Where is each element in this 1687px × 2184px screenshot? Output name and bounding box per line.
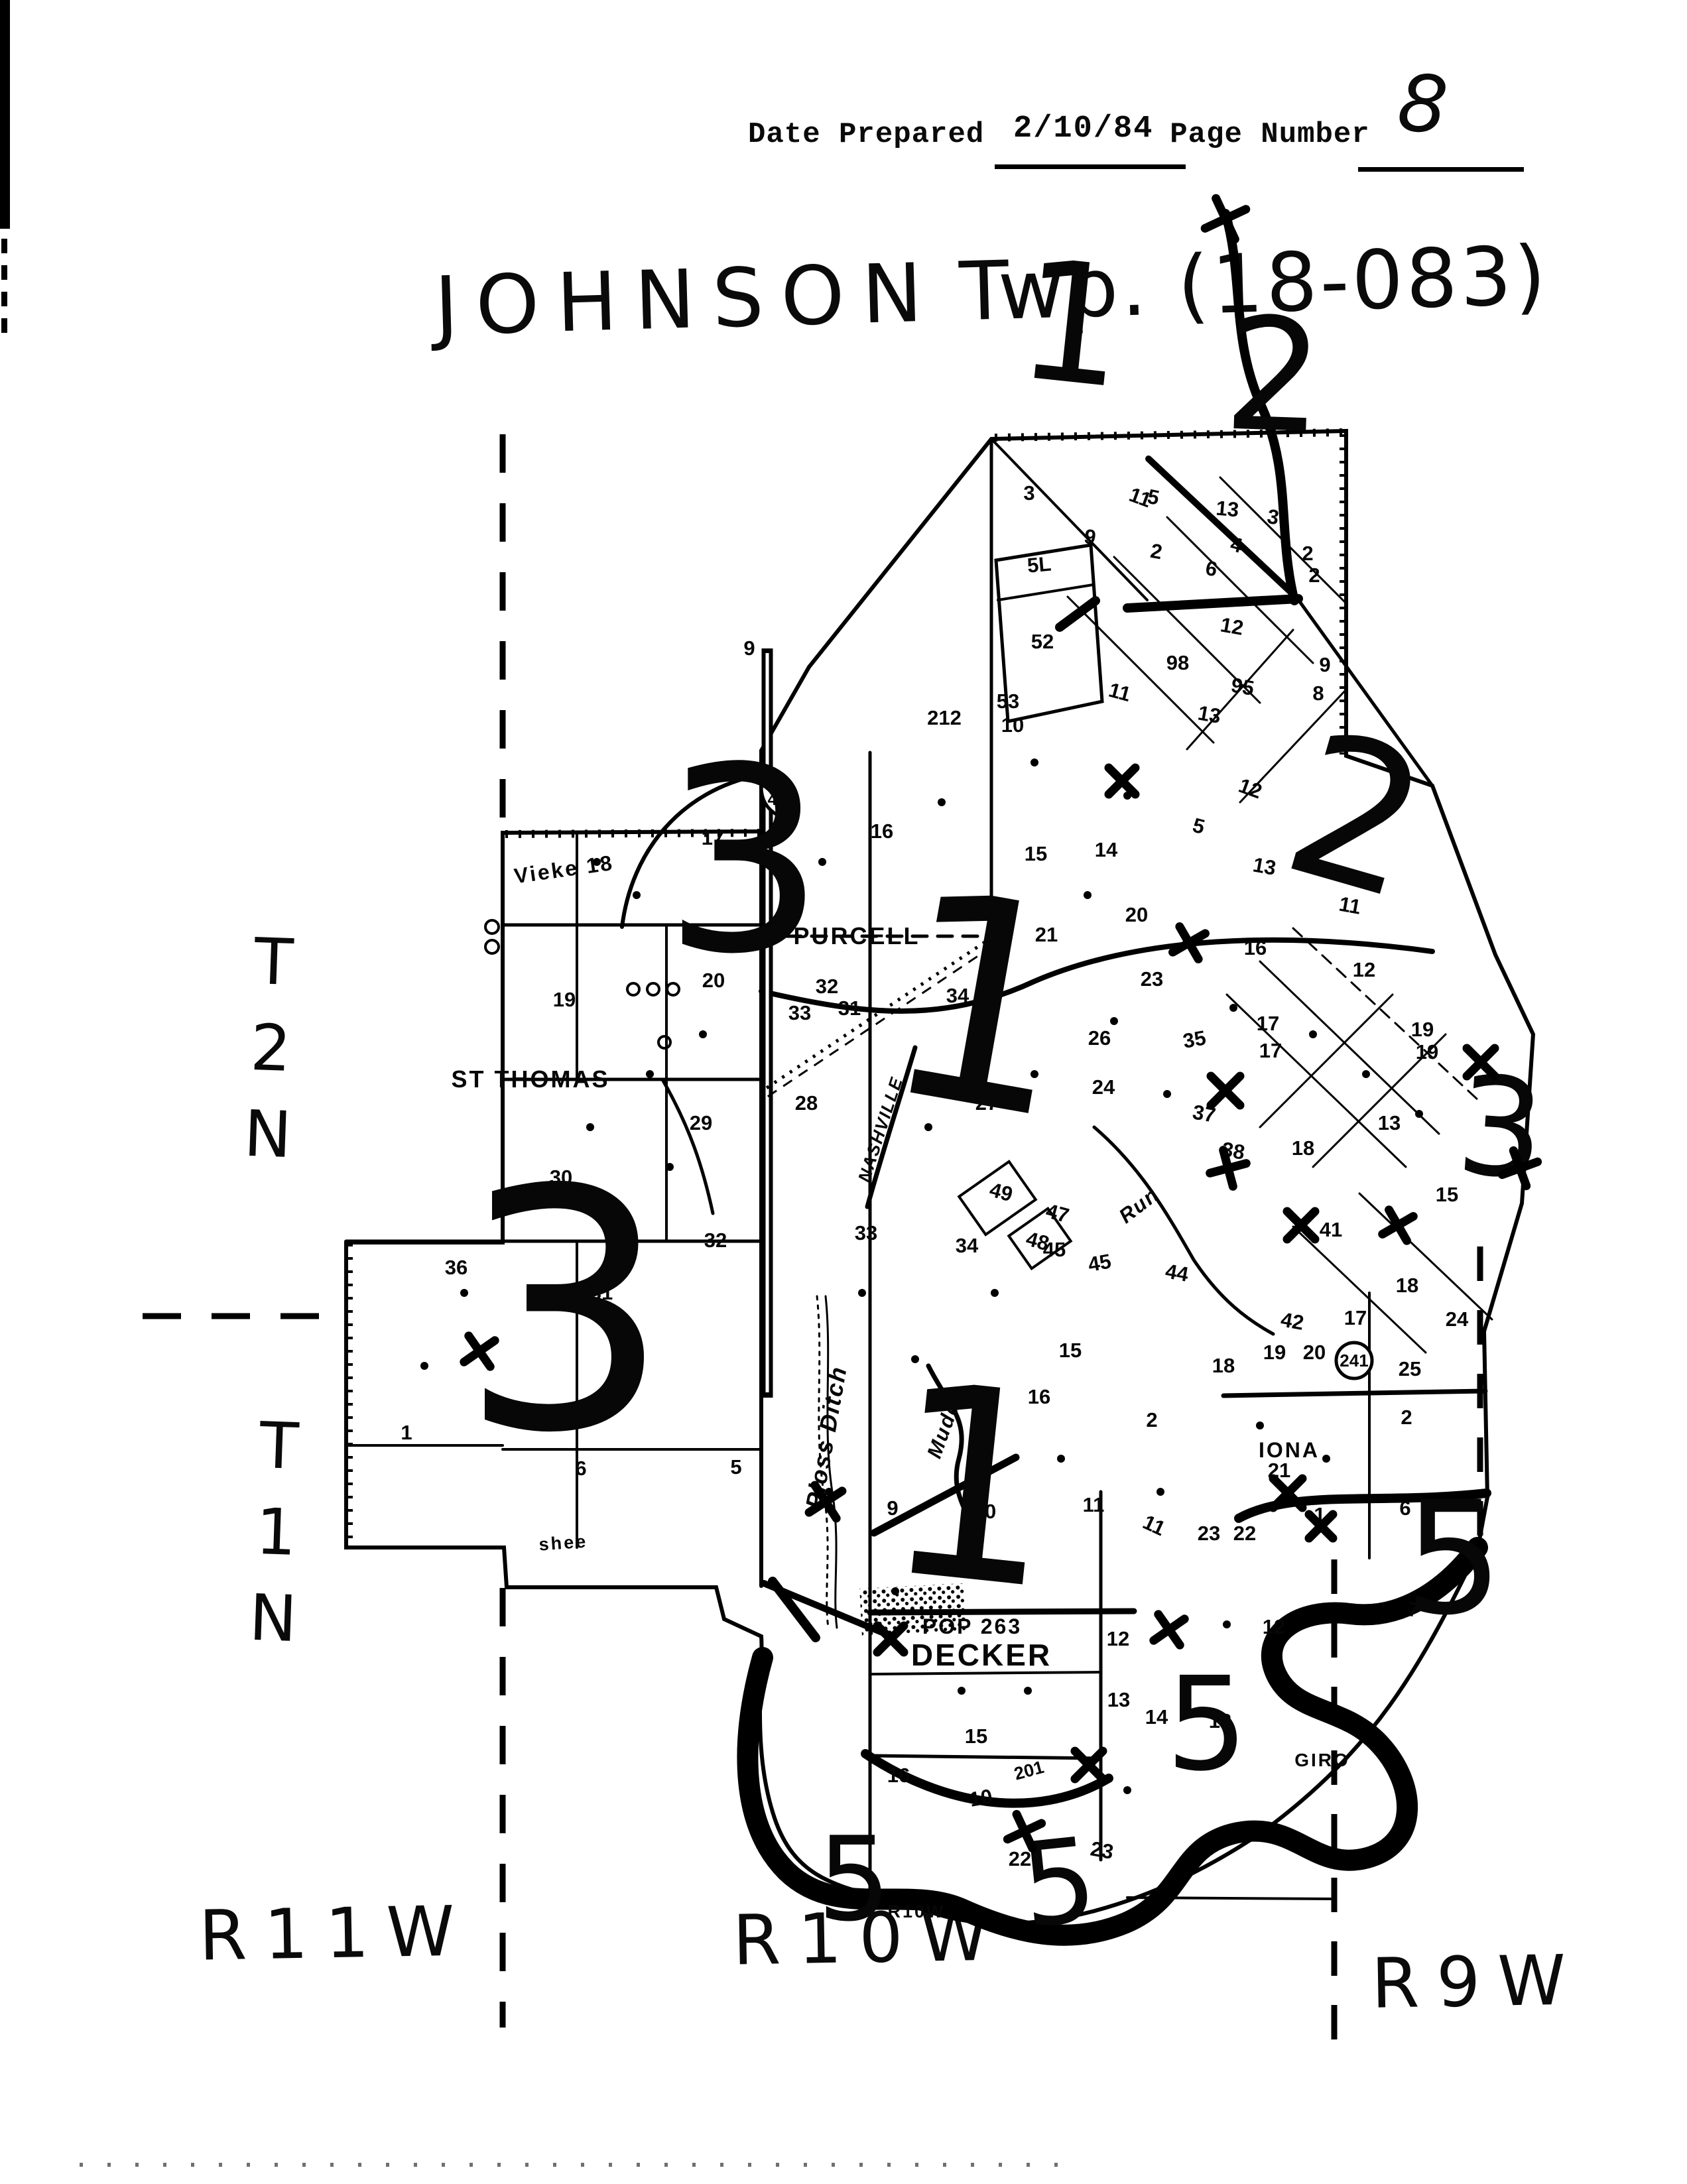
parcel-number-label: 15 bbox=[965, 1725, 987, 1748]
parcel-number-label: 6 bbox=[1204, 556, 1219, 581]
district-numeral: 5 bbox=[1166, 1649, 1248, 1799]
parcel-number-label: 2 bbox=[1401, 1406, 1412, 1429]
parcel-number-label: 9 bbox=[743, 637, 755, 660]
parcel-number-label: 16 bbox=[1244, 936, 1267, 959]
parcel-number-label: 20 bbox=[1303, 1341, 1326, 1364]
district-numeral: 2 bbox=[1221, 284, 1326, 469]
parcel-number-label: 23 bbox=[1198, 1522, 1220, 1545]
parcel-number-label: 41 bbox=[1320, 1218, 1342, 1241]
parcel-number-label: 11 bbox=[1083, 1493, 1105, 1516]
parcel-number-label: 17 bbox=[1257, 1012, 1279, 1035]
parcel-number-label: 42 bbox=[1279, 1307, 1306, 1334]
parcel-number-label: 2 bbox=[1149, 539, 1164, 564]
parcel-number-label: 17 bbox=[1259, 1039, 1282, 1062]
parcel-number-label: 5 bbox=[730, 1455, 741, 1479]
parcel-number-label: 53 bbox=[997, 690, 1019, 713]
parcel-number-label: 23 bbox=[1141, 967, 1163, 991]
parcel-number-label: 44 bbox=[1164, 1259, 1191, 1286]
town-label: GIRO bbox=[1294, 1750, 1350, 1770]
parcel-number-label: 47 bbox=[1044, 1199, 1072, 1227]
parcel-number-label: 3 bbox=[1265, 505, 1281, 529]
parcel-number-label: 29 bbox=[690, 1111, 712, 1134]
parcel-number-label: 2 bbox=[1146, 1408, 1157, 1431]
parcel-number-label: 95 bbox=[1229, 673, 1256, 699]
route-shield-label: 241 bbox=[1340, 1351, 1368, 1370]
parcel-number-label: 11 bbox=[1139, 1510, 1169, 1541]
plat-map-page: Date PreparedPage Number 2/10/84 8 JOHNS… bbox=[0, 0, 1687, 2184]
parcel-number-label: 19 bbox=[553, 988, 576, 1011]
parcel-number-label: 45 bbox=[1043, 1238, 1066, 1261]
parcel-number-label: 2 bbox=[1308, 564, 1320, 587]
parcel-number-label: 12 bbox=[1107, 1627, 1129, 1650]
town-label: Vieke 18 bbox=[513, 851, 615, 888]
parcel-number-label: 5 bbox=[1190, 814, 1208, 839]
parcel-number-label: 17 bbox=[1344, 1306, 1367, 1329]
parcel-number-label: 1 bbox=[401, 1421, 412, 1444]
parcel-number-label: 10 bbox=[968, 1784, 994, 1811]
parcel-number-label: 201 bbox=[1012, 1757, 1046, 1784]
parcel-number-label: 19 bbox=[1416, 1040, 1438, 1063]
parcel-number-label: 13 bbox=[1378, 1111, 1401, 1134]
district-numeral: 1 bbox=[864, 826, 1100, 1184]
town-label: IONA bbox=[1259, 1438, 1320, 1462]
parcel-number-label: 16 bbox=[887, 1764, 910, 1787]
parcel-number-label: 13 bbox=[1215, 497, 1239, 522]
parcel-number-label: 22 bbox=[1233, 1522, 1256, 1545]
district-numeral: 1 bbox=[1010, 223, 1135, 426]
town-label: ST THOMAS bbox=[452, 1065, 610, 1093]
parcel-number-label: 26 bbox=[1088, 1026, 1111, 1050]
parcel-number-label: 32 bbox=[704, 1229, 727, 1252]
parcel-number-label: 28 bbox=[795, 1091, 818, 1115]
parcel-number-label: 20 bbox=[1125, 903, 1148, 926]
parcel-number-label: 98 bbox=[1166, 651, 1189, 674]
district-numeral: 3 bbox=[460, 1119, 670, 1505]
parcel-number-label: 12 bbox=[1353, 958, 1375, 981]
district-numeral: 1 bbox=[873, 1325, 1073, 1650]
parcel-number-label: 25 bbox=[1399, 1357, 1421, 1380]
parcel-number-label: 14 bbox=[1145, 1705, 1168, 1729]
circle-route-shield: 241 bbox=[1336, 1343, 1372, 1378]
parcel-number-label: 5L bbox=[1027, 552, 1052, 577]
x-mark bbox=[1211, 1076, 1240, 1105]
x-mark bbox=[1075, 1751, 1103, 1779]
parcel-number-label: 11 bbox=[1106, 678, 1133, 706]
parcel-number-label: 34 bbox=[956, 1234, 979, 1257]
parcel-number-label: 3 bbox=[1023, 481, 1034, 505]
x-mark bbox=[1383, 1210, 1414, 1241]
parcel-number-label: 13 bbox=[1107, 1688, 1130, 1711]
parcel-number-label: 13 bbox=[1196, 701, 1223, 727]
parcel-number-label: 18 bbox=[1212, 1354, 1235, 1377]
parcel-number-label: 24 bbox=[1446, 1307, 1469, 1331]
district-numeral: 3 bbox=[663, 713, 826, 1010]
district-numeral: 5 bbox=[817, 1813, 891, 1947]
district-numeral: 5 bbox=[1404, 1469, 1503, 1650]
parcel-number-label: 52 bbox=[1031, 630, 1054, 653]
parcel-number-label: 16 bbox=[871, 819, 893, 843]
parcel-number-label: 18 bbox=[1292, 1136, 1314, 1160]
parcel-number-label: 12 bbox=[1263, 1615, 1285, 1638]
district-numeral: 2 bbox=[1265, 687, 1450, 944]
parcel-number-label: 12 bbox=[1235, 774, 1265, 804]
parcel-number-label: 24 bbox=[1092, 1075, 1115, 1099]
well-circles bbox=[485, 920, 679, 1048]
parcel-number-label: 49 bbox=[987, 1178, 1015, 1206]
parcel-number-label: 212 bbox=[927, 706, 962, 729]
parcel-number-label: 8 bbox=[1312, 682, 1324, 705]
parcel-number-label: 33 bbox=[855, 1221, 877, 1244]
parcel-number-label: 45 bbox=[1086, 1249, 1113, 1276]
town-label: R10W bbox=[887, 1902, 945, 1921]
parcel-number-label: 19 bbox=[1411, 1018, 1434, 1041]
x-mark bbox=[1154, 1614, 1184, 1645]
x-mark bbox=[1109, 768, 1135, 794]
parcel-number-label: 35 bbox=[1181, 1026, 1208, 1052]
district-numerals: 123132315555 bbox=[460, 223, 1549, 1955]
parcel-number-label: 2 bbox=[1302, 542, 1313, 565]
parcel-number-label: 19 bbox=[1263, 1341, 1286, 1364]
survey-boundary-dashed-lines bbox=[143, 434, 1480, 2052]
township-map: 354325L525321296221298111395131189109171… bbox=[0, 0, 1687, 2184]
parcel-number-label: 12 bbox=[1219, 613, 1245, 639]
town-label: shee bbox=[538, 1531, 588, 1554]
parcel-number-label: 9 bbox=[1319, 653, 1330, 676]
parcel-number-label: 18 bbox=[1396, 1274, 1418, 1297]
parcel-number-label: 10 bbox=[1001, 713, 1024, 737]
parcel-number-label: 31 bbox=[838, 997, 861, 1020]
stream-label: Run bbox=[1115, 1183, 1164, 1228]
